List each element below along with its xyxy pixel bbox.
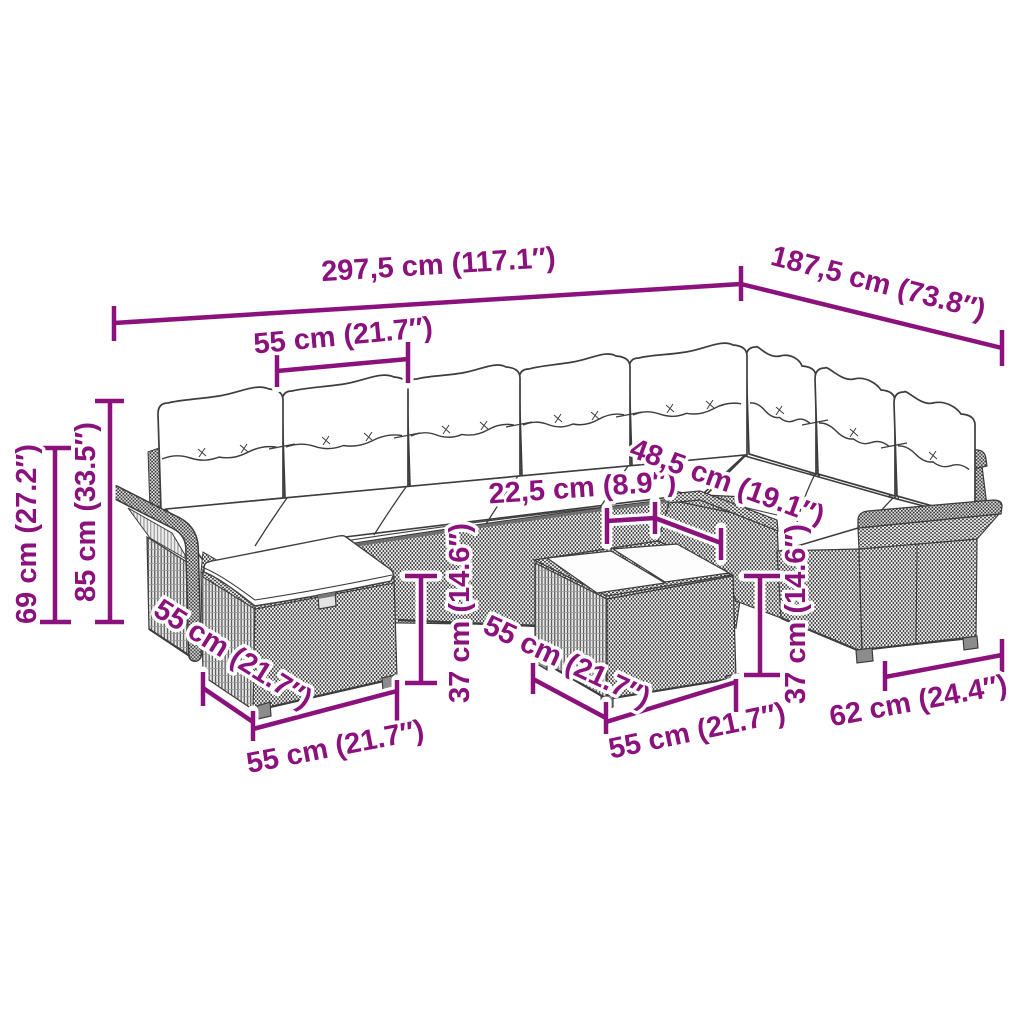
- svg-text:85 cm (33.5″): 85 cm (33.5″): [70, 422, 102, 602]
- svg-text:37 cm (14.6″): 37 cm (14.6″): [444, 523, 476, 703]
- svg-text:69 cm (27.2″): 69 cm (27.2″): [11, 444, 43, 624]
- svg-text:37 cm (14.6″): 37 cm (14.6″): [780, 524, 812, 704]
